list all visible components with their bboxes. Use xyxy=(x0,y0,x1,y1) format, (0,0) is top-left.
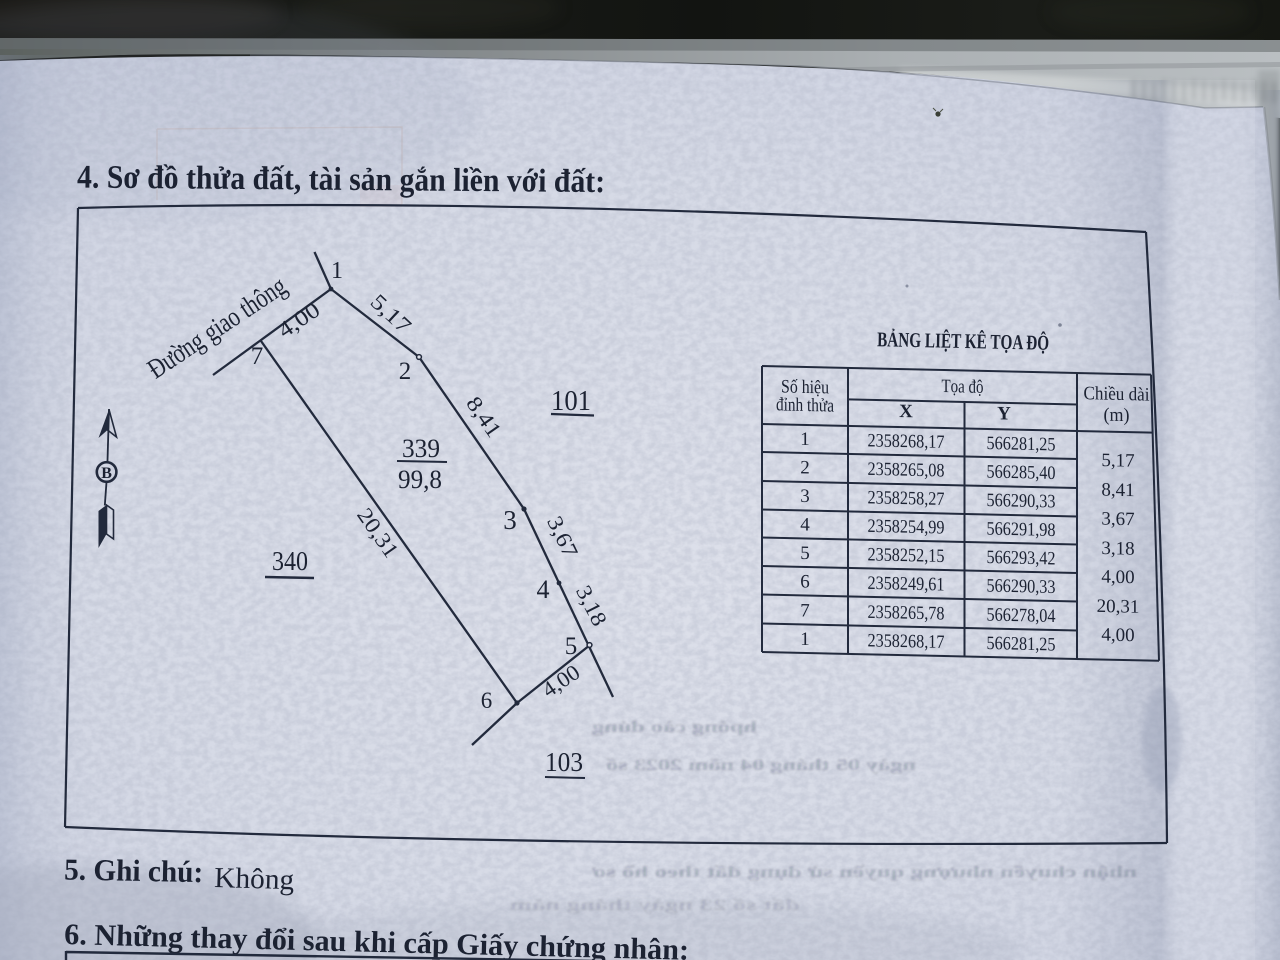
svg-text:hpóng cào đúng: hpóng cào đúng xyxy=(592,719,757,736)
svg-text:1: 1 xyxy=(331,258,343,284)
svg-text:4: 4 xyxy=(537,575,550,604)
svg-text:6: 6 xyxy=(800,571,809,592)
svg-text:5,17: 5,17 xyxy=(1101,450,1134,472)
svg-text:4,00: 4,00 xyxy=(1101,567,1134,589)
svg-text:566290,33: 566290,33 xyxy=(986,490,1055,513)
svg-text:nhận chuyển nhượng quyền sử dụ: nhận chuyển nhượng quyền sử dụng đất the… xyxy=(592,864,1137,881)
svg-text:B: B xyxy=(101,465,112,482)
svg-text:101: 101 xyxy=(551,385,591,417)
svg-text:566291,98: 566291,98 xyxy=(986,518,1055,541)
svg-text:2: 2 xyxy=(399,358,412,385)
svg-text:7: 7 xyxy=(800,600,809,621)
svg-text:2358265,08: 2358265,08 xyxy=(867,459,944,482)
svg-text:103: 103 xyxy=(545,747,583,777)
svg-text:1: 1 xyxy=(800,429,809,450)
svg-text:BẢNG LIỆT KÊ TỌA ĐỘ: BẢNG LIỆT KÊ TỌA ĐỘ xyxy=(877,327,1049,355)
svg-text:3: 3 xyxy=(800,486,809,507)
svg-text:2358254,99: 2358254,99 xyxy=(867,516,944,539)
svg-text:3: 3 xyxy=(503,505,517,535)
svg-text:3,67: 3,67 xyxy=(1101,509,1134,531)
svg-text:Chiều dài: Chiều dài xyxy=(1084,383,1150,405)
svg-text:Y: Y xyxy=(997,403,1011,424)
svg-text:7: 7 xyxy=(251,343,264,370)
svg-text:ngày 05 tháng 04 năm 2023 số: ngày 05 tháng 04 năm 2023 số xyxy=(604,757,916,774)
svg-text:2358265,78: 2358265,78 xyxy=(867,602,944,625)
svg-text:5: 5 xyxy=(565,633,578,660)
svg-text:566285,40: 566285,40 xyxy=(986,461,1055,484)
svg-text:2358258,27: 2358258,27 xyxy=(867,487,944,510)
svg-text:339: 339 xyxy=(402,434,440,463)
svg-text:566290,33: 566290,33 xyxy=(986,575,1055,598)
svg-text:5. Ghi chú:: 5. Ghi chú: xyxy=(64,853,204,890)
svg-text:Tọa độ: Tọa độ xyxy=(942,376,984,398)
svg-text:566281,25: 566281,25 xyxy=(986,633,1055,656)
svg-text:5: 5 xyxy=(800,543,809,564)
svg-text:2358252,15: 2358252,15 xyxy=(867,544,944,567)
svg-text:566278,04: 566278,04 xyxy=(986,604,1055,627)
svg-text:99,8: 99,8 xyxy=(398,465,442,494)
svg-text:X: X xyxy=(899,401,913,422)
svg-text:4: 4 xyxy=(800,514,810,535)
svg-text:4. Sơ đồ thửa đất, tài sản gắn: 4. Sơ đồ thửa đất, tài sản gắn liền với … xyxy=(77,160,605,201)
svg-text:4,00: 4,00 xyxy=(1101,625,1134,647)
svg-text:8,41: 8,41 xyxy=(1101,480,1134,502)
svg-text:566293,42: 566293,42 xyxy=(986,547,1055,570)
svg-text:566281,25: 566281,25 xyxy=(986,433,1055,456)
svg-text:2358249,61: 2358249,61 xyxy=(867,573,944,596)
svg-text:Không: Không xyxy=(214,862,295,896)
svg-text:đỉnh thửa: đỉnh thửa xyxy=(776,394,834,416)
svg-text:2358268,17: 2358268,17 xyxy=(867,630,944,653)
svg-text:340: 340 xyxy=(272,546,308,576)
svg-text:đất số 23 ngày tháng năm: đất số 23 ngày tháng năm xyxy=(509,897,800,914)
svg-text:6: 6 xyxy=(481,688,493,713)
svg-text:3,18: 3,18 xyxy=(1101,538,1134,560)
svg-text:(m): (m) xyxy=(1104,405,1130,427)
svg-text:1: 1 xyxy=(800,629,809,650)
svg-text:20,31: 20,31 xyxy=(1097,596,1140,618)
svg-text:2358268,17: 2358268,17 xyxy=(867,430,944,453)
svg-text:2: 2 xyxy=(800,457,809,478)
